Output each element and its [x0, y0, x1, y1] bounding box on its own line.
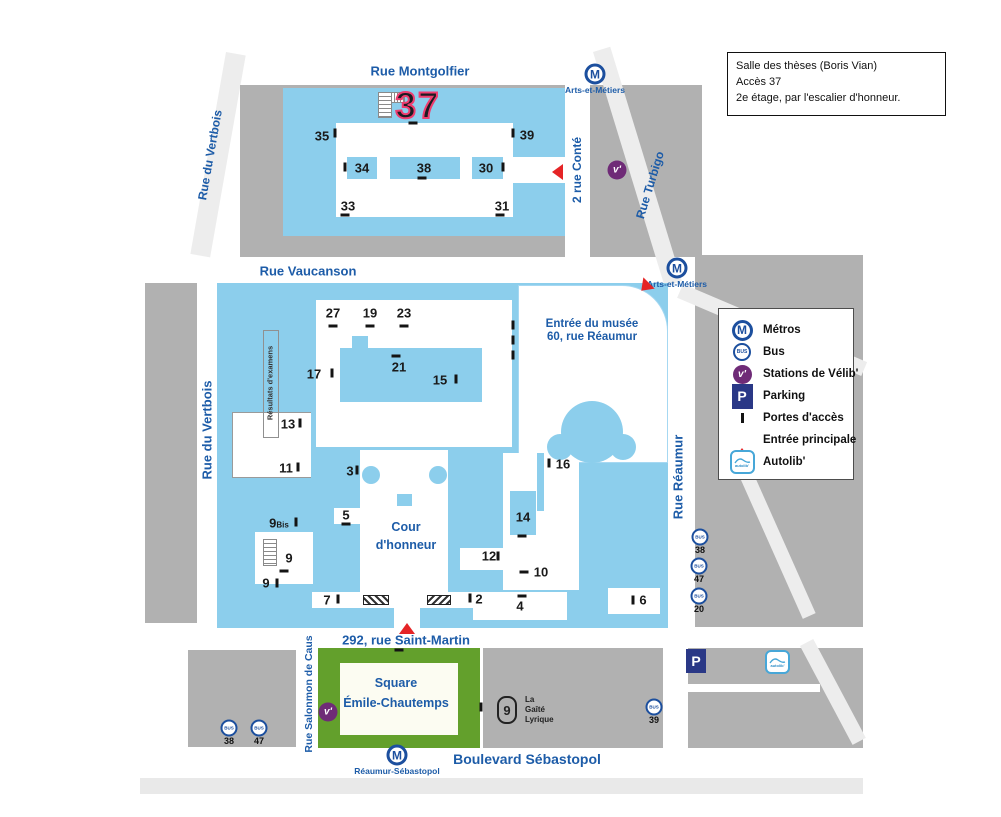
building-number: 7: [323, 593, 330, 608]
building-number: 16: [556, 457, 570, 472]
building-number: 34: [355, 161, 369, 176]
access-gate-icon: [341, 214, 350, 217]
autolib-icon: autolib': [765, 650, 790, 674]
campus-access-map: Salle des thèses (Boris Vian) Accès 37 2…: [0, 0, 1001, 817]
building-number: 35: [315, 129, 329, 144]
access-gate-icon: [520, 571, 529, 574]
building-number: 9: [262, 576, 269, 591]
gaite-label-3: Lyrique: [525, 715, 554, 724]
tower-right: [429, 466, 447, 484]
resultats-examens-label: Résultats d'examens: [266, 346, 275, 420]
access-gate-icon: [496, 214, 505, 217]
building-number: 17: [307, 367, 321, 382]
access-gate-icon: [632, 596, 635, 605]
velib-icon: v': [608, 161, 627, 180]
access-gate-icon: [280, 570, 289, 573]
gate-icon: [729, 413, 755, 423]
bus-icon: BUS: [691, 558, 708, 575]
access-gate-icon: [400, 325, 409, 328]
legend-label: Stations de Vélib': [763, 368, 858, 380]
sidewalk-band-bottom: [140, 778, 863, 794]
info-line-1: Salle des thèses (Boris Vian): [736, 59, 937, 75]
legend-label: Parking: [763, 390, 805, 402]
musee-entrance-label-1: Entrée du musée: [546, 318, 639, 330]
legend: M Métros BUS Bus v' Stations de Vélib' P…: [718, 308, 854, 480]
access-gate-icon: [395, 649, 404, 652]
staircase-icon: [263, 539, 277, 566]
legend-row-bus: BUS Bus: [729, 341, 845, 363]
legend-row-velib: v' Stations de Vélib': [729, 363, 845, 385]
building-number: 31: [495, 199, 509, 214]
building-number: 21: [392, 360, 406, 375]
access-gate-icon: [512, 129, 515, 138]
musee-entrance-label-2: 60, rue Réaumur: [547, 331, 637, 343]
bus-icon: BUS: [251, 720, 268, 737]
access-gate-icon: [329, 325, 338, 328]
legend-row-autolib: autolib' Autolib': [729, 451, 845, 473]
bus-line-number: 47: [254, 736, 264, 746]
street-name-label: Rue Montgolfier: [371, 64, 470, 79]
parking-icon: P: [686, 649, 706, 673]
building-number: 15: [433, 373, 447, 388]
building-number: 33: [341, 199, 355, 214]
access-gate-icon: [334, 129, 337, 138]
access-gate-icon: [297, 463, 300, 472]
metro-icon: M: [387, 745, 408, 766]
access-gate-icon: [366, 325, 375, 328]
street-name-label: Rue du Vertbois: [200, 381, 215, 480]
metro-icon: M: [729, 320, 755, 341]
legend-label: Portes d'accès: [763, 412, 844, 424]
autolib-icon: autolib': [729, 450, 755, 474]
access-gate-icon: [518, 595, 527, 598]
access-gate-icon: [337, 595, 340, 604]
metro-station-label: Arts-et-Métiers: [647, 279, 707, 289]
metro-icon: M: [667, 258, 688, 279]
access-gate-icon: [512, 351, 515, 360]
cour-honneur-label-1: Cour: [391, 520, 420, 534]
street-gap-southeast: [688, 684, 820, 692]
access-gate-icon: [469, 594, 472, 603]
building-number: 5: [342, 508, 349, 523]
parking-icon: P: [729, 384, 755, 409]
bus-icon: BUS: [221, 720, 238, 737]
street-name-label: Rue Vaucanson: [260, 264, 357, 279]
legend-row-gates: Portes d'accès: [729, 407, 845, 429]
building-number: 9: [285, 551, 292, 566]
divider-14-16: [537, 453, 544, 511]
access-gate-icon: [502, 163, 505, 172]
velib-icon: v': [319, 703, 338, 722]
access-gate-icon: [276, 579, 279, 588]
hatched-zone: [427, 595, 451, 605]
building-21-notch: [352, 336, 368, 350]
street-name-label: 2 rue Conté: [570, 137, 584, 203]
info-line-3: 2e étage, par l'escalier d'honneur.: [736, 91, 937, 107]
access-gate-icon: [512, 321, 515, 330]
metro-station-label: Arts-et-Métiers: [565, 85, 625, 95]
building-21-wing: [340, 348, 482, 402]
building-number: 9Bis: [269, 516, 289, 531]
access-gate-icon: [331, 369, 334, 378]
cour-honneur-label-2: d'honneur: [376, 538, 437, 552]
gaite-label-2: Gaîté: [525, 705, 545, 714]
access-gate-icon: [295, 518, 298, 527]
hatched-zone: [363, 595, 389, 605]
entrance-arrow-icon: [729, 431, 755, 449]
street-name-label: Boulevard Sébastopol: [453, 751, 601, 767]
street-name-label: Rue Salonmon de Caus: [303, 635, 315, 752]
access-gate-icon: [497, 552, 500, 561]
metro-station-label: Réaumur-Sébastopol: [354, 766, 440, 776]
building-number: 2: [475, 592, 482, 607]
square-label-2: Émile-Chautemps: [343, 696, 449, 710]
legend-row-entrance: Entrée principale: [729, 429, 845, 451]
velib-icon: v': [729, 365, 755, 384]
gaite-lyrique-logo: 9: [497, 696, 517, 724]
legend-label: Métros: [763, 324, 801, 336]
bus-icon: BUS: [646, 699, 663, 716]
legend-row-parking: P Parking: [729, 385, 845, 407]
museum-dome-right: [610, 434, 636, 460]
building-number: 38: [417, 161, 431, 176]
access-gate-icon: [409, 122, 418, 125]
bus-line-number: 47: [694, 574, 704, 584]
building-number: 13: [281, 417, 295, 432]
bus-icon: BUS: [729, 343, 755, 361]
tower-left: [362, 466, 380, 484]
building-number: 39: [520, 128, 534, 143]
bus-line-number: 38: [224, 736, 234, 746]
staircase-icon: [378, 92, 392, 118]
building-number: 37: [395, 85, 440, 127]
info-line-2: Accès 37: [736, 75, 937, 91]
block-southwest: [188, 650, 296, 747]
building-number: 4: [516, 599, 523, 614]
bus-line-number: 20: [694, 604, 704, 614]
entrance-arrow-icon: [399, 606, 415, 628]
street-name-label: 292, rue Saint-Martin: [342, 633, 470, 648]
building-number: 3: [346, 464, 353, 479]
bus-icon: BUS: [691, 588, 708, 605]
building-number: 6: [639, 593, 646, 608]
legend-row-metro: M Métros: [729, 319, 845, 341]
access-gate-icon: [299, 419, 302, 428]
access-gate-icon: [356, 466, 359, 475]
bus-icon: BUS: [692, 529, 709, 546]
building-number: 10: [534, 565, 548, 580]
gaite-label-1: La: [525, 695, 534, 704]
access-gate-icon: [548, 459, 551, 468]
cour-notch: [397, 494, 412, 506]
metro-icon: M: [585, 64, 606, 85]
bus-line-number: 38: [695, 545, 705, 555]
square-label-1: Square: [375, 676, 417, 690]
access-gate-icon: [512, 336, 515, 345]
legend-label: Autolib': [763, 456, 805, 468]
legend-label: Bus: [763, 346, 785, 358]
block-vertbois-west: [145, 283, 197, 623]
building-number: 27: [326, 306, 340, 321]
bus-line-number: 39: [649, 715, 659, 725]
access-gate-icon: [418, 177, 427, 180]
building-number: 23: [397, 306, 411, 321]
street-name-label: Rue Réaumur: [671, 435, 686, 520]
access-gate-icon: [344, 163, 347, 172]
building-number: 19: [363, 306, 377, 321]
access-gate-icon: [342, 523, 351, 526]
street-vertbois-north: [190, 52, 245, 257]
access-gate-icon: [518, 535, 527, 538]
entrance-arrow-icon: [535, 164, 557, 180]
info-box: Salle des thèses (Boris Vian) Accès 37 2…: [727, 52, 946, 116]
building-number: 11: [279, 461, 293, 476]
access-gate-icon: [455, 375, 458, 384]
legend-label: Entrée principale: [763, 434, 856, 446]
access-gate-icon: [480, 703, 483, 712]
building-number: 12: [482, 549, 496, 564]
access-gate-icon: [392, 355, 401, 358]
building-number: 30: [479, 161, 493, 176]
building-number: 14: [516, 510, 530, 525]
